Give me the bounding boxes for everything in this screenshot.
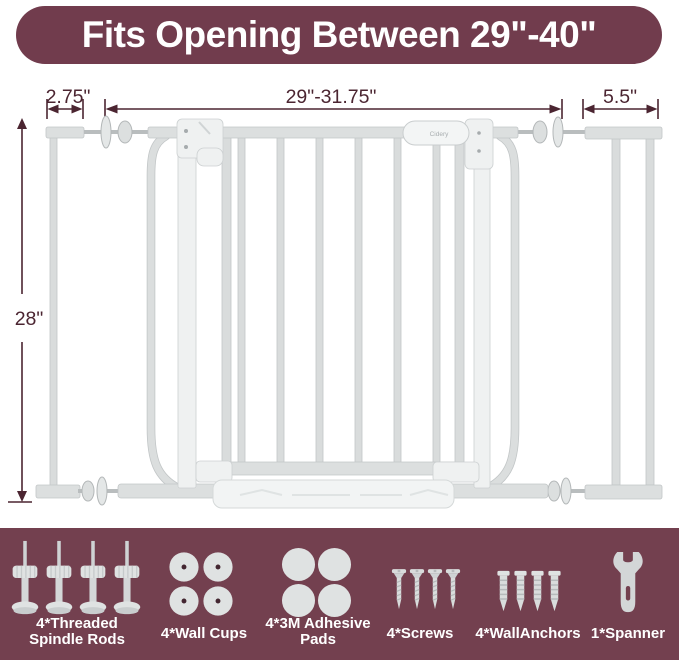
dim-left-label: 2.75" (46, 86, 91, 108)
dimension-width-main: 29"-31.75" (105, 86, 562, 119)
screw-icon (427, 567, 443, 613)
bottom-latch (433, 462, 479, 482)
accessory-label-spanner: 1*Spanner (572, 626, 679, 642)
main-gate: Cidery (118, 119, 548, 508)
spindle-rod-icon (10, 540, 40, 616)
spindle-rod-top-left (84, 116, 150, 148)
bottom-hinge (196, 461, 232, 482)
baby-gate: Cidery (36, 116, 662, 508)
dimension-height: 28" (8, 118, 43, 502)
product-image: Fits Opening Between 29"-40" 2.75" 29" (0, 0, 679, 660)
adhesive-pad-icons (281, 547, 352, 618)
wall-cup-icons (168, 551, 234, 617)
gate-door-bars (238, 136, 440, 466)
wall-cup-icon (168, 585, 200, 617)
wall-anchor-icon (496, 570, 511, 614)
spindle-rod-icon (112, 540, 142, 616)
brand-label: Cidery (430, 131, 450, 138)
dim-main-label: 29"-31.75" (286, 86, 377, 108)
dim-right-label: 5.5" (603, 86, 637, 108)
dimension-width-left: 2.75" (46, 86, 91, 119)
spanner-icon-wrap (611, 551, 645, 617)
accessory-label-adhesive-pads: 4*3M Adhesive Pads (255, 616, 381, 648)
wall-cup-icon (202, 551, 234, 583)
wall-cup-icon (168, 551, 200, 583)
accessory-label-wall-cups: 4*Wall Cups (145, 626, 263, 642)
wall-anchor-icon (513, 570, 528, 614)
screw-icons (391, 567, 461, 613)
right-extension (585, 127, 662, 499)
threshold-plate (213, 480, 454, 508)
adhesive-pad-icon (281, 547, 316, 582)
dim-height-label: 28" (15, 308, 44, 330)
gate-handle: Cidery (403, 119, 493, 169)
spindle-rod-top-right (518, 117, 586, 147)
spanner-icon (611, 551, 645, 617)
spindle-rod-icons (10, 540, 142, 616)
accessory-label-spindle-rods: 4*Threaded Spindle Rods (10, 616, 144, 648)
spindle-rod-icon (44, 540, 74, 616)
spindle-rod-bottom-right (546, 478, 586, 504)
adhesive-pad-icon (317, 583, 352, 618)
wall-cup-icon (202, 585, 234, 617)
gate-diagram: 2.75" 29"-31.75" 5.5" (0, 0, 679, 528)
accessories-band: 4*Threaded Spindle Rods 4*Wall Cups 4*3M… (0, 528, 679, 660)
spindle-rod-icon (78, 540, 108, 616)
adhesive-pad-icon (281, 583, 316, 618)
spindle-rod-bottom-left (78, 477, 120, 505)
wall-anchor-icon (530, 570, 545, 614)
accessory-label-screws: 4*Screws (372, 626, 468, 642)
screw-icon (445, 567, 461, 613)
dimension-width-right: 5.5" (583, 86, 658, 119)
screw-icon (391, 567, 407, 613)
adhesive-pad-icon (317, 547, 352, 582)
wall-anchor-icons (496, 570, 562, 614)
screw-icon (409, 567, 425, 613)
wall-anchor-icon (547, 570, 562, 614)
